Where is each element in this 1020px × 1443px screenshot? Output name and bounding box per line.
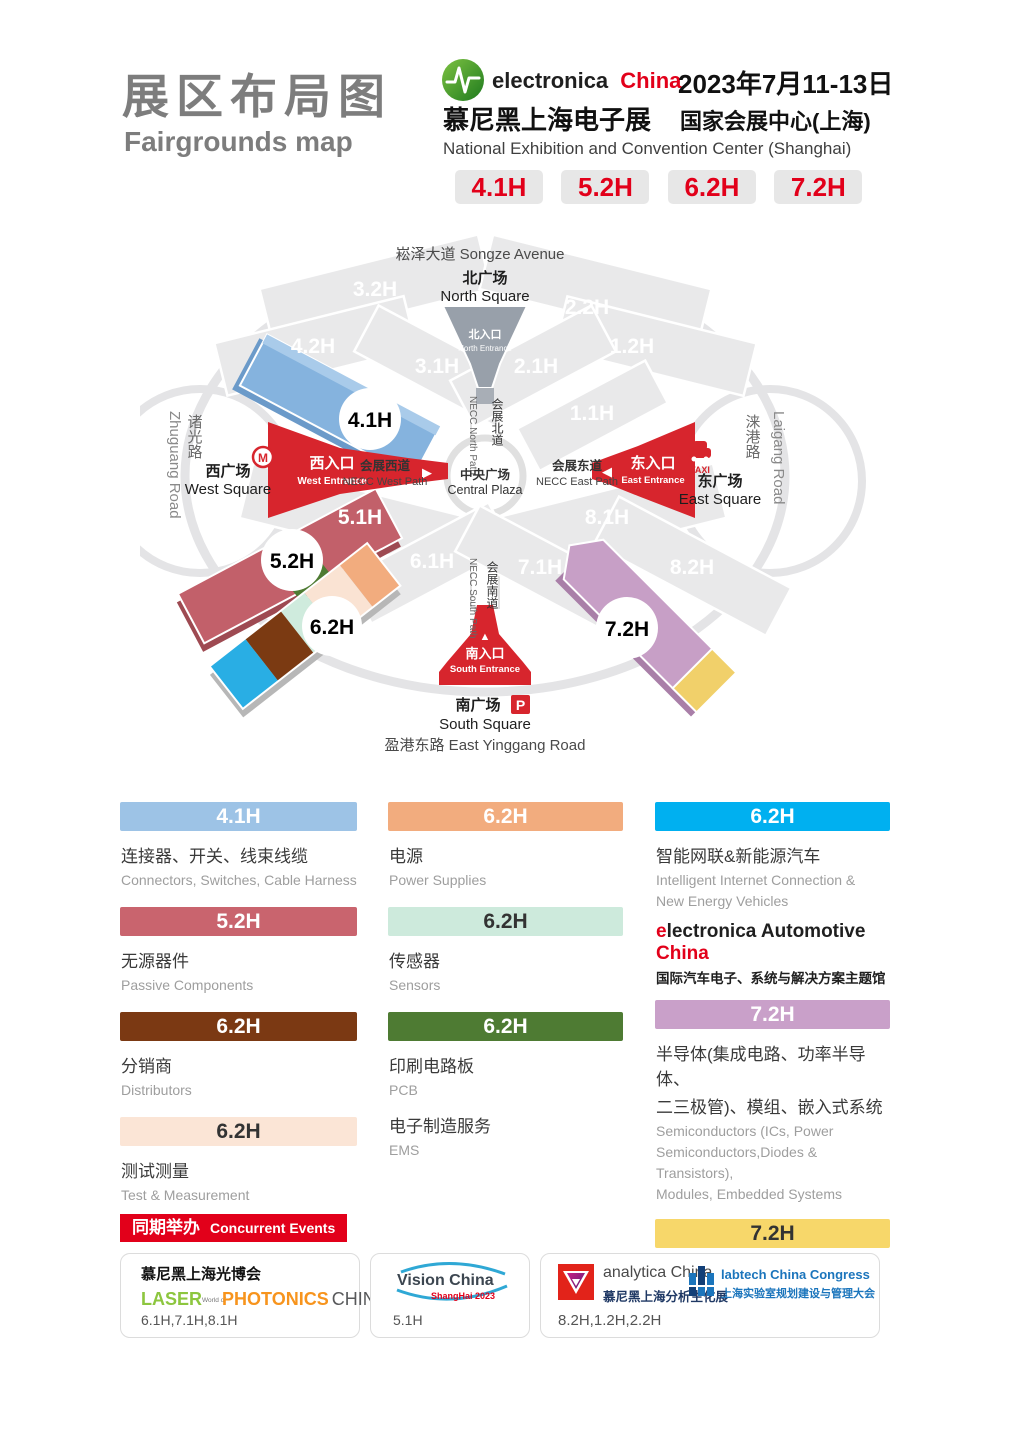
svg-text:Central Plaza: Central Plaza <box>447 483 522 497</box>
analytica-logo <box>558 1264 594 1300</box>
svg-text:3.1H: 3.1H <box>415 355 459 378</box>
banner-cn: 同期举办 <box>132 1218 200 1237</box>
legend-item: 5.2H 无源器件 Passive Components <box>120 907 357 996</box>
legend-item: 6.2H 传感器 Sensors <box>388 907 623 996</box>
legend-item: 6.2H 分销商 Distributors <box>120 1012 357 1101</box>
event-date: 2023年7月11-13日 <box>678 64 893 101</box>
zhuguang-road-cn: 诸光路 <box>186 414 203 459</box>
category-cn: 分销商 <box>121 1052 357 1077</box>
svg-text:1.1H: 1.1H <box>570 402 614 425</box>
legend-hall-bar: 6.2H <box>388 907 623 936</box>
svg-text:2.1H: 2.1H <box>514 355 558 378</box>
svg-text:East Entrance: East Entrance <box>621 475 684 486</box>
hall-badge: 6.2H <box>668 170 756 204</box>
svg-text:南入口: 南入口 <box>465 646 504 661</box>
svg-text:7.1H: 7.1H <box>518 556 562 579</box>
fairgrounds-map-page: 展区布局图 Fairgrounds map electronica China … <box>0 0 1020 1443</box>
svg-text:2.2H: 2.2H <box>565 296 609 319</box>
category-en: EMS <box>389 1140 623 1161</box>
svg-text:3.2H: 3.2H <box>353 278 397 301</box>
svg-text:West Square: West Square <box>185 481 271 498</box>
parking-icon: P <box>511 695 530 714</box>
legend-item: 4.1H 连接器、开关、线束线缆 Connectors, Switches, C… <box>120 802 357 891</box>
svg-text:NECC West Path: NECC West Path <box>343 476 428 488</box>
category-cn: 测试测量 <box>121 1157 357 1182</box>
vision-china-sub: ShangHai 2023 <box>431 1291 495 1301</box>
labtech-name: labtech China Congress <box>721 1267 870 1282</box>
svg-text:6.1H: 6.1H <box>410 550 454 573</box>
legend-item: 6.2H 印刷电路板 PCB 电子制造服务 EMS <box>388 1012 623 1161</box>
vision-china-name: Vision China <box>397 1272 494 1290</box>
category-en: Semiconductors,Diodes & Transistors), <box>656 1142 890 1184</box>
brand-electronica: electronica <box>492 68 608 93</box>
svg-text:北入口: 北入口 <box>469 327 502 341</box>
banner-en: Concurrent Events <box>210 1220 335 1236</box>
necc-north-path-en: NECC North Path <box>467 396 478 475</box>
svg-text:5.1H: 5.1H <box>338 506 382 529</box>
svg-text:5.2H: 5.2H <box>270 550 314 573</box>
svg-text:South Entrance: South Entrance <box>450 664 520 675</box>
svg-text:4.1H: 4.1H <box>348 409 392 432</box>
event-card-vision-china: Vision China ShangHai 2023 5.1H <box>370 1253 530 1338</box>
arrow-up-icon: ▲ <box>480 631 491 643</box>
brand-subtitle-cn: 慕尼黑上海电子展 <box>443 100 651 137</box>
legend-column-2: 6.2H 电源 Power Supplies 6.2H 传感器 Sensors … <box>388 802 623 1161</box>
laigang-road-en: Laigang Road <box>770 411 787 504</box>
hall-badge: 7.2H <box>774 170 862 204</box>
category-en: New Energy Vehicles <box>656 891 890 912</box>
necc-south-path-cn: 会展南道 <box>485 561 499 609</box>
hall-badge: 4.1H <box>455 170 543 204</box>
page-title-en: Fairgrounds map <box>124 126 353 158</box>
svg-text:M: M <box>258 451 268 465</box>
legend-hall-bar: 7.2H <box>655 1219 890 1248</box>
svg-text:North Entrance: North Entrance <box>458 344 512 353</box>
category-en: Passive Components <box>121 975 357 996</box>
category-en: Distributors <box>121 1080 357 1101</box>
legend-hall-bar: 7.2H <box>655 1000 890 1029</box>
svg-text:7.2H: 7.2H <box>605 618 649 641</box>
south-entrance: ▲ 南入口 South Entrance <box>439 605 531 685</box>
svg-text:6.2H: 6.2H <box>310 616 354 639</box>
category-en: Semiconductors (ICs, Power <box>656 1121 890 1142</box>
labtech-logo <box>689 1264 715 1298</box>
event-card-analytica-labtech: analytica China 慕尼黑上海分析生化展 labtech China… <box>540 1253 880 1338</box>
legend-hall-bar: 5.2H <box>120 907 357 936</box>
metro-icon: M <box>253 447 273 467</box>
category-cn: 电源 <box>389 842 623 867</box>
svg-text:8.2H: 8.2H <box>670 556 714 579</box>
brand-name: electronica China <box>492 68 681 94</box>
category-cn: 半导体(集成电路、功率半导体、 <box>656 1040 890 1090</box>
category-en: PCB <box>389 1080 623 1101</box>
svg-text:NECC East Path: NECC East Path <box>536 476 618 488</box>
analytica-halls: 8.2H,1.2H,2.2H <box>558 1312 661 1329</box>
songze-avenue-label: 崧泽大道 Songze Avenue <box>396 246 565 263</box>
category-en: Power Supplies <box>389 870 623 891</box>
category-cn: 印刷电路板 <box>389 1052 623 1077</box>
category-cn: 二三极管)、模组、嵌入式系统 <box>656 1093 890 1118</box>
svg-text:中央广场: 中央广场 <box>460 467 510 482</box>
page-title: 展区布局图 <box>122 58 392 127</box>
yinggang-road-label: 盈港东路 East Yinggang Road <box>385 737 586 754</box>
venue-map: 北入口 North Entrance 西入口 West Entrance ▶ 东… <box>140 226 880 761</box>
labtech-cn: 上海实验室规划建设与管理大会 <box>721 1285 875 1301</box>
category-en: Intelligent Internet Connection & <box>656 870 890 891</box>
brand-china: China <box>620 68 681 93</box>
event-card-photonics: 慕尼黑上海光博会 LASERWorld ofPHOTONICSCHINA✦ 6.… <box>120 1253 360 1338</box>
category-cn: 传感器 <box>389 947 623 972</box>
svg-text:North Square: North Square <box>440 288 529 305</box>
svg-text:East Square: East Square <box>679 491 762 508</box>
hall-badges: 4.1H 5.2H 6.2H 7.2H <box>455 170 876 204</box>
category-cn: 连接器、开关、线束线缆 <box>121 842 357 867</box>
legend-item: 7.2H 半导体(集成电路、功率半导体、 二三极管)、模组、嵌入式系统 Semi… <box>655 1000 890 1205</box>
category-cn: 电子制造服务 <box>389 1112 623 1137</box>
automotive-brand: electronica Automotive China <box>656 921 890 965</box>
category-cn: 智能网联&新能源汽车 <box>656 842 890 867</box>
svg-text:会展西道: 会展西道 <box>360 458 411 473</box>
automotive-brand-cn: 国际汽车电子、系统与解决方案主题馆 <box>656 967 890 987</box>
svg-text:北广场: 北广场 <box>462 269 507 287</box>
category-cn: 无源器件 <box>121 947 357 972</box>
vision-halls: 5.1H <box>393 1312 423 1328</box>
legend-item: 6.2H 测试测量 Test & Measurement <box>120 1117 357 1206</box>
concurrent-events-banner: 同期举办Concurrent Events <box>120 1214 347 1242</box>
svg-text:东广场: 东广场 <box>697 472 742 490</box>
svg-text:4.2H: 4.2H <box>291 335 335 358</box>
legend-column-1: 4.1H 连接器、开关、线束线缆 Connectors, Switches, C… <box>120 802 357 1206</box>
laigang-road-cn: 涞港路 <box>744 414 761 459</box>
legend-hall-bar: 6.2H <box>655 802 890 831</box>
svg-text:南广场: 南广场 <box>455 696 500 714</box>
venue-cn: 国家会展中心(上海) <box>680 104 871 136</box>
zhuguang-road-en: Zhuguang Road <box>166 411 183 519</box>
svg-text:会展东道: 会展东道 <box>552 458 603 473</box>
legend-hall-bar: 6.2H <box>388 802 623 831</box>
venue-en: National Exhibition and Convention Cente… <box>443 139 851 159</box>
legend-hall-bar: 6.2H <box>120 1117 357 1146</box>
photonics-cn: 慕尼黑上海光博会 <box>141 1263 261 1284</box>
necc-north-path-cn: 会展北道 <box>490 398 504 446</box>
legend-item: 6.2H 电源 Power Supplies <box>388 802 623 891</box>
category-en: Connectors, Switches, Cable Harness <box>121 870 357 891</box>
category-en: Sensors <box>389 975 623 996</box>
svg-text:8.1H: 8.1H <box>585 506 629 529</box>
legend-hall-bar: 6.2H <box>388 1012 623 1041</box>
necc-south-path-en: NECC South Path <box>467 558 478 639</box>
svg-text:1.2H: 1.2H <box>610 335 654 358</box>
svg-text:东入口: 东入口 <box>630 454 675 472</box>
category-en: Modules, Embedded Systems <box>656 1184 890 1205</box>
legend-hall-bar: 4.1H <box>120 802 357 831</box>
hall-badge: 5.2H <box>561 170 649 204</box>
photonics-halls: 6.1H,7.1H,8.1H <box>141 1312 238 1328</box>
svg-text:西入口: 西入口 <box>309 455 354 472</box>
legend-column-3: 6.2H 智能网联&新能源汽车 Intelligent Internet Con… <box>655 802 890 1308</box>
category-en: Test & Measurement <box>121 1185 357 1206</box>
svg-text:P: P <box>516 697 525 713</box>
svg-text:South Square: South Square <box>439 716 531 733</box>
svg-text:西广场: 西广场 <box>205 462 250 480</box>
legend-item: 6.2H 智能网联&新能源汽车 Intelligent Internet Con… <box>655 802 890 987</box>
legend-hall-bar: 6.2H <box>120 1012 357 1041</box>
laser-photonics-logo: LASERWorld ofPHOTONICSCHINA✦ <box>141 1284 402 1310</box>
